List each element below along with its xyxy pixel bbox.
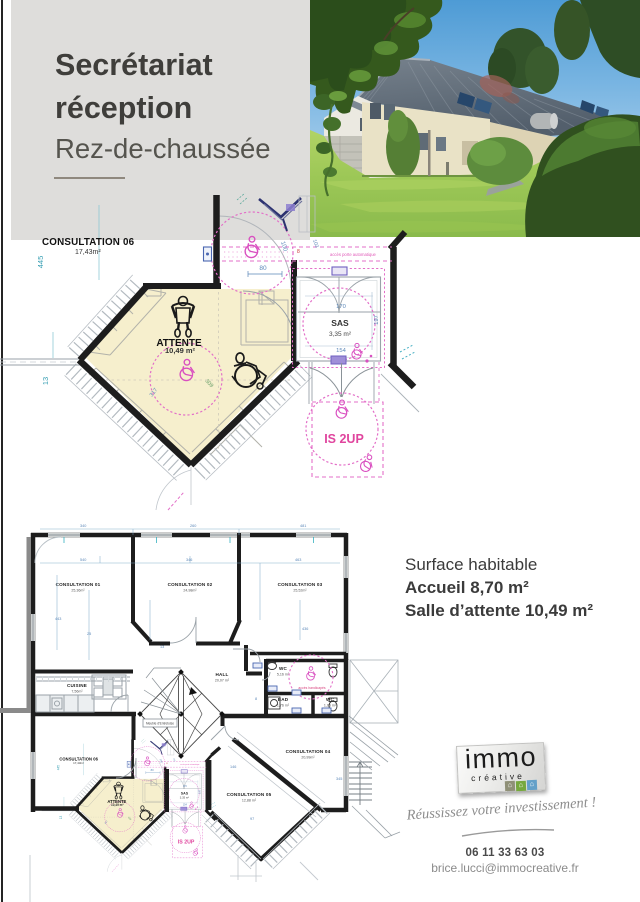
svg-text:24,98m²: 24,98m²	[183, 589, 197, 593]
svg-text:25: 25	[87, 632, 91, 636]
svg-text:CUISINE: CUISINE	[67, 683, 87, 688]
svg-text:340: 340	[80, 524, 86, 528]
svg-text:8: 8	[255, 697, 257, 701]
svg-text:443: 443	[55, 617, 61, 621]
svg-text:CONSULTATION 05: CONSULTATION 05	[227, 792, 272, 797]
svg-text:WC: WC	[279, 666, 288, 671]
svg-text:BAD: BAD	[278, 697, 289, 702]
svg-text:345: 345	[336, 777, 342, 781]
svg-text:540: 540	[80, 558, 86, 562]
svg-text:13: 13	[160, 645, 164, 649]
svg-text:CONSULTATION 01: CONSULTATION 01	[56, 582, 101, 587]
svg-text:146: 146	[230, 765, 236, 769]
svg-text:5,16 m²: 5,16 m²	[277, 673, 290, 677]
svg-text:346: 346	[186, 558, 192, 562]
svg-text:20,07 m²: 20,07 m²	[215, 679, 230, 683]
svg-text:7,56m²: 7,56m²	[71, 690, 83, 694]
svg-text:481: 481	[300, 524, 306, 528]
svg-text:12,88 m²: 12,88 m²	[242, 799, 257, 803]
svg-text:HALL: HALL	[215, 672, 228, 677]
svg-text:463: 463	[295, 558, 301, 562]
svg-text:260: 260	[190, 524, 196, 528]
svg-text:25,36m²: 25,36m²	[71, 589, 85, 593]
svg-text:20,99m²: 20,99m²	[301, 756, 315, 760]
svg-text:CONSULTATION 03: CONSULTATION 03	[278, 582, 323, 587]
svg-text:CONSULTATION 04: CONSULTATION 04	[286, 749, 331, 754]
svg-text:CONSULTATION 02: CONSULTATION 02	[168, 582, 213, 587]
svg-text:1,06 m²: 1,06 m²	[324, 704, 337, 708]
svg-text:1,76 m²: 1,76 m²	[277, 704, 290, 708]
svg-text:accès handicapés: accès handicapés	[298, 686, 325, 690]
svg-text:Meuble d'Entretoise: Meuble d'Entretoise	[146, 722, 174, 726]
svg-text:25,52m²: 25,52m²	[293, 589, 307, 593]
svg-text:436: 436	[302, 627, 308, 631]
svg-text:97: 97	[250, 817, 254, 821]
